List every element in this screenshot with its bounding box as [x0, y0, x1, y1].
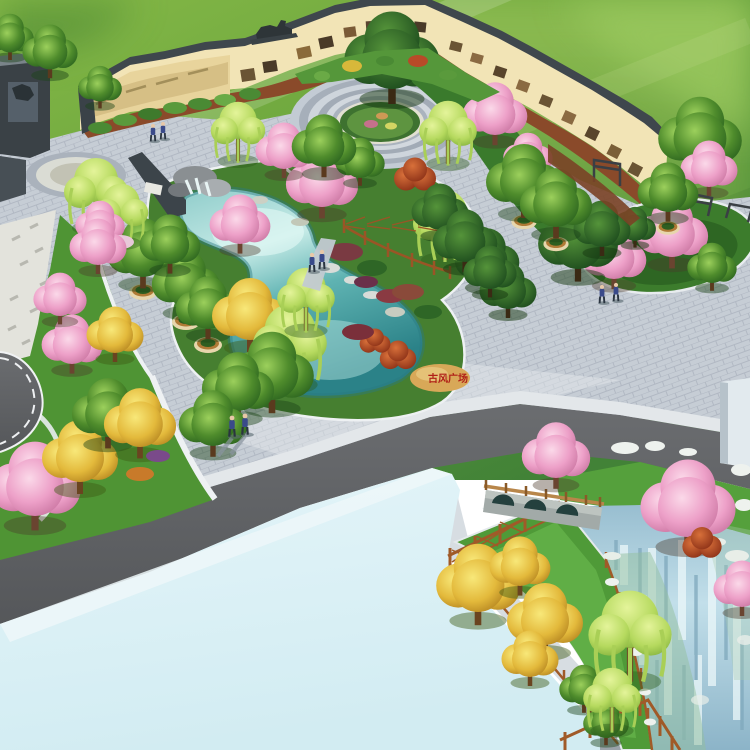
svg-text:古风广场: 古风广场 [428, 372, 468, 385]
